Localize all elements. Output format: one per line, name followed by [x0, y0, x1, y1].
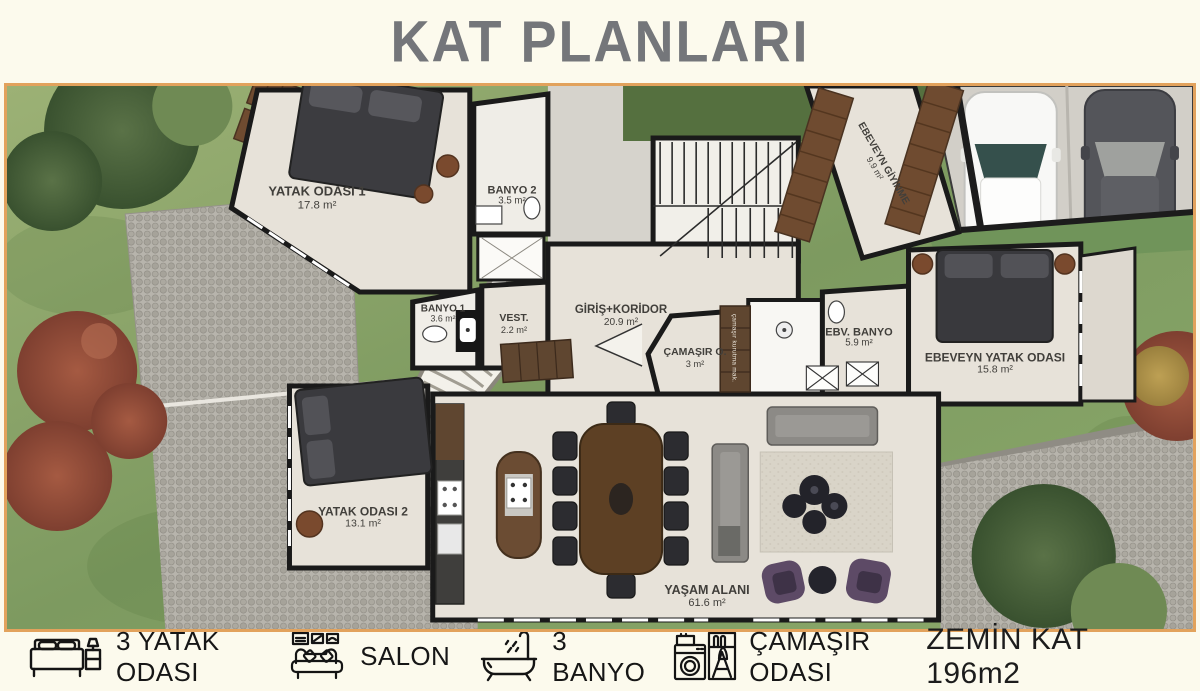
washing-machine-icon: [673, 632, 737, 682]
legend-label-salon: SALON: [360, 641, 450, 672]
legend-item-bedrooms: 3 YATAK ODASI: [28, 626, 262, 688]
room-label-ebeveyn-yatak-odasi: EBEVEYN YATAK ODASI 15.8 m²: [925, 351, 1065, 376]
room-label-yatak-odasi-2: YATAK ODASI 2 13.1 m²: [318, 505, 408, 530]
room-label-banyo-1: BANYO 1 3.6 m²: [421, 303, 465, 324]
legend-item-laundry: ÇAMAŞIR ODASI: [673, 626, 912, 688]
legend-item-salon: SALON: [290, 632, 450, 682]
legend-item-bathrooms: 3 BANYO: [478, 626, 645, 688]
room-terrace: [1081, 248, 1135, 401]
floor-area-label: ZEMİN KAT 196m2: [926, 623, 1146, 691]
room-label-banyo-2: BANYO 2 3.5 m²: [488, 184, 537, 207]
page-title: KAT PLANLARI: [391, 8, 810, 75]
bed-bedroom2: [295, 377, 433, 486]
stool: [437, 155, 459, 177]
bed-icon: [28, 634, 104, 680]
room-shower2: [478, 236, 544, 280]
room-label-giris-koridor: GİRİŞ+KORİDOR 20.9 m²: [575, 304, 667, 328]
room-label-vest: VEST. 2.2 m²: [499, 313, 528, 335]
driveway: [927, 86, 1193, 266]
room-label-camasir-odasi: ÇAMAŞIR O. 3 m²: [664, 347, 727, 369]
legend-label-laundry: ÇAMAŞIR ODASI: [749, 626, 912, 688]
room-label-ebv-banyo: EBV. BANYO 5.9 m²: [825, 326, 892, 349]
floor-plan-image: YATAK ODASI 1 17.8 m² BANYO 2 3.5 m² EBE…: [4, 83, 1196, 632]
closet-note: çamaşır kurutma mak.: [730, 314, 737, 382]
floor-plan-slide: KAT PLANLARI: [0, 0, 1200, 681]
title-bar: KAT PLANLARI: [0, 0, 1200, 83]
room-label-yatak-odasi-1: YATAK ODASI 1 17.8 m²: [268, 184, 365, 211]
legend-bar: 3 YATAK ODASI SALON: [0, 632, 1200, 681]
legend-label-bathrooms: 3 BANYO: [552, 626, 645, 688]
sofa-icon: [290, 632, 348, 682]
room-label-yasam-alani: YAŞAM ALANI 61.6 m²: [664, 583, 749, 609]
bed-master: [913, 250, 1075, 342]
stool: [415, 185, 433, 203]
bathtub-icon: [478, 632, 540, 682]
legend-label-bedrooms: 3 YATAK ODASI: [116, 626, 262, 688]
